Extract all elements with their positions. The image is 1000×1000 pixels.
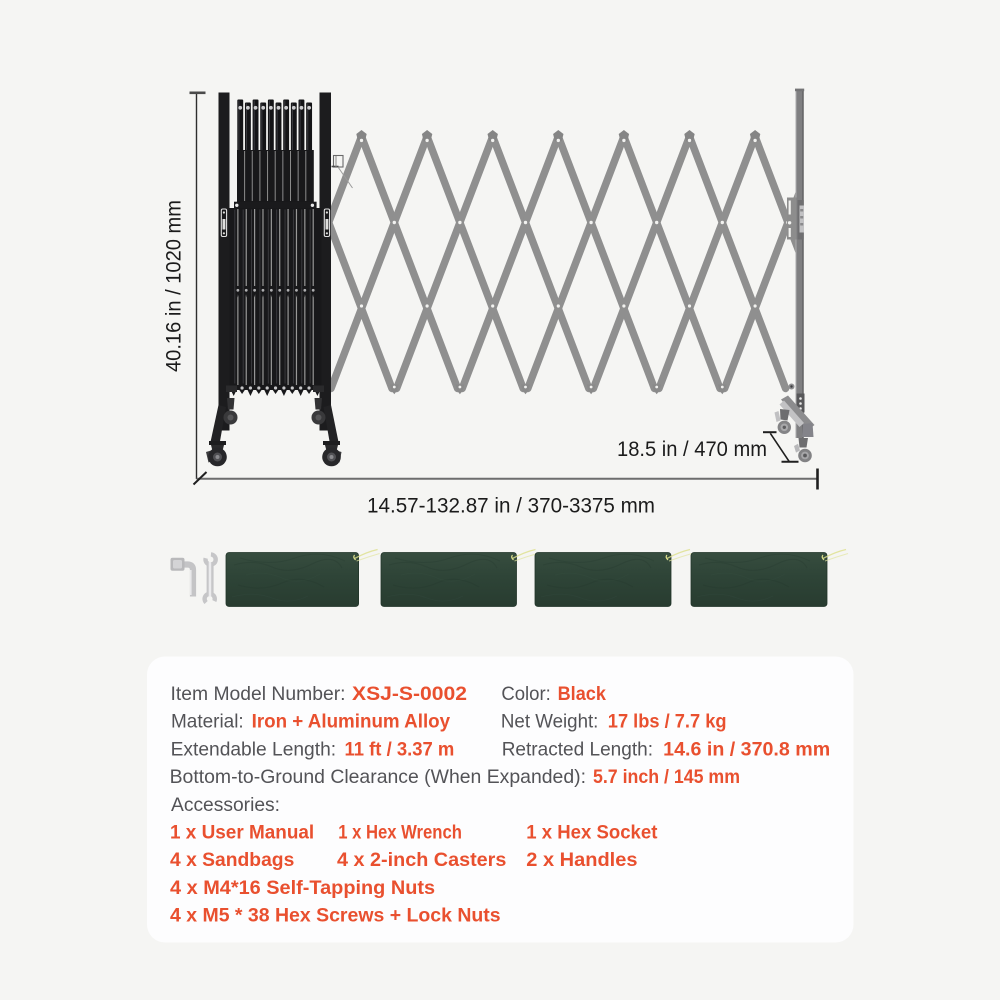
- svg-text:4 x M4*16 Self-Tapping Nuts: 4 x M4*16 Self-Tapping Nuts: [170, 877, 435, 899]
- svg-text:1 x User Manual: 1 x User Manual: [170, 822, 314, 844]
- svg-text:14.57-132.87 in / 370-3375 mm: 14.57-132.87 in / 370-3375 mm: [367, 492, 655, 517]
- svg-text:Accessories:: Accessories:: [171, 794, 280, 816]
- svg-text:Net Weight:: Net Weight:: [501, 711, 599, 733]
- svg-text:1 x Hex Socket: 1 x Hex Socket: [526, 822, 658, 844]
- svg-text:Black: Black: [558, 683, 606, 705]
- svg-text:Item Model Number:: Item Model Number:: [171, 683, 346, 705]
- svg-text:4 x Sandbags: 4 x Sandbags: [170, 849, 294, 871]
- svg-text:Material:: Material:: [171, 711, 244, 733]
- svg-text:18.5 in / 470 mm: 18.5 in / 470 mm: [617, 436, 767, 461]
- svg-text:11 ft / 3.37 m: 11 ft / 3.37 m: [345, 738, 455, 760]
- svg-text:17 lbs / 7.7 kg: 17 lbs / 7.7 kg: [608, 711, 727, 733]
- svg-text:5.7 inch / 145 mm: 5.7 inch / 145 mm: [593, 766, 740, 788]
- svg-text:2 x Handles: 2 x Handles: [526, 849, 637, 871]
- svg-text:Bottom-to-Ground Clearance (Wh: Bottom-to-Ground Clearance (When Expande…: [170, 766, 586, 788]
- svg-text:Iron + Aluminum Alloy: Iron + Aluminum Alloy: [252, 711, 451, 733]
- svg-text:Extendable Length:: Extendable Length:: [171, 738, 337, 760]
- svg-text:4 x 2-inch Casters: 4 x 2-inch Casters: [337, 849, 506, 871]
- svg-text:14.6 in / 370.8 mm: 14.6 in / 370.8 mm: [663, 738, 830, 760]
- svg-text:4 x M5 * 38 Hex Screws + Lock: 4 x M5 * 38 Hex Screws + Lock Nuts: [170, 905, 501, 927]
- svg-text:Retracted Length:: Retracted Length:: [502, 738, 653, 760]
- svg-text:1 x Hex Wrench: 1 x Hex Wrench: [338, 822, 462, 844]
- svg-text:XSJ-S-0002: XSJ-S-0002: [352, 683, 467, 705]
- svg-text:40.16 in / 1020 mm: 40.16 in / 1020 mm: [161, 200, 186, 372]
- svg-text:Color:: Color:: [501, 683, 550, 705]
